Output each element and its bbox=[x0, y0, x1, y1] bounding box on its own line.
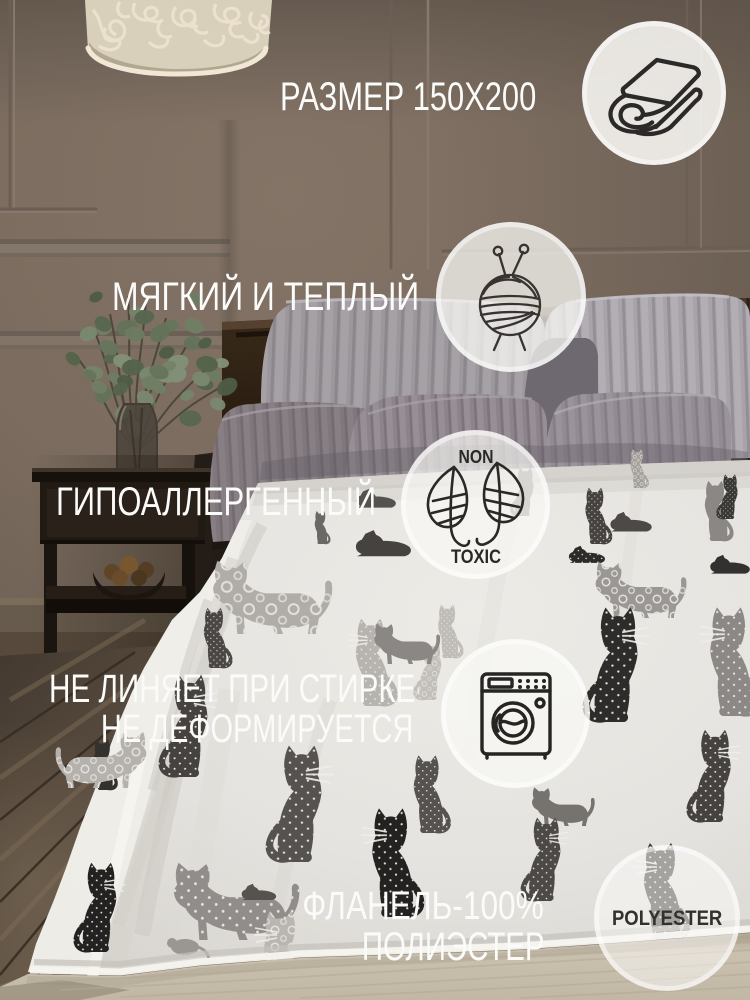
svg-text:NON: NON bbox=[458, 446, 493, 467]
svg-text:TOXIC: TOXIC bbox=[451, 547, 501, 568]
